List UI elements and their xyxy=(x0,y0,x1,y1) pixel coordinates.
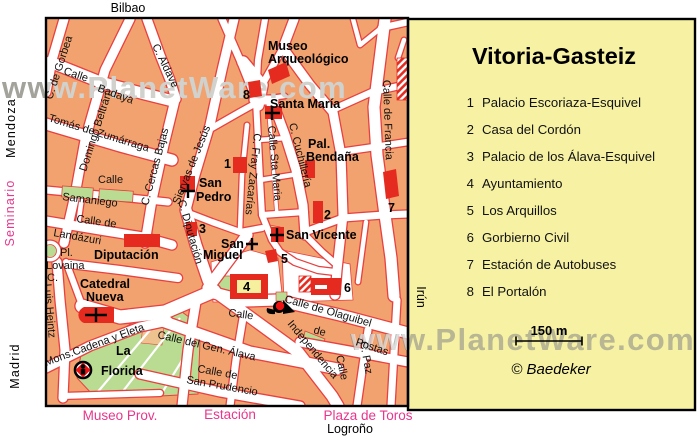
svg-text:Bendaña: Bendaña xyxy=(306,150,360,164)
svg-text:6: 6 xyxy=(467,230,474,245)
svg-text:5: 5 xyxy=(467,203,474,218)
svg-text:C.: C. xyxy=(47,272,58,284)
svg-text:8: 8 xyxy=(467,284,474,299)
svg-text:Arqueológico: Arqueológico xyxy=(268,52,349,66)
svg-text:Irún: Irún xyxy=(414,286,428,308)
svg-text:8: 8 xyxy=(243,88,250,102)
svg-text:La: La xyxy=(116,344,132,358)
svg-text:2: 2 xyxy=(324,208,331,222)
svg-text:Los Arquillos: Los Arquillos xyxy=(482,203,557,218)
svg-text:3: 3 xyxy=(467,149,474,164)
svg-text:San Vicente: San Vicente xyxy=(286,228,357,242)
svg-text:150 m: 150 m xyxy=(531,323,568,338)
svg-text:Florida: Florida xyxy=(101,364,144,378)
svg-text:4: 4 xyxy=(467,176,474,191)
svg-text:Miguel: Miguel xyxy=(203,248,243,262)
svg-text:Bilbao: Bilbao xyxy=(111,1,146,15)
svg-text:El Portalón: El Portalón xyxy=(482,284,547,299)
svg-text:6: 6 xyxy=(344,281,351,295)
svg-text:Plaza de Toros: Plaza de Toros xyxy=(323,408,412,423)
svg-text:1: 1 xyxy=(467,95,474,110)
svg-text:Museo: Museo xyxy=(268,39,308,53)
svg-text:Ayuntamiento: Ayuntamiento xyxy=(482,176,562,191)
svg-text:Seminario: Seminario xyxy=(3,179,17,246)
svg-text:San: San xyxy=(199,176,222,190)
svg-text:Pl.: Pl. xyxy=(60,247,73,259)
svg-text:7: 7 xyxy=(388,201,395,215)
svg-text:Gorbierno Civil: Gorbierno Civil xyxy=(482,230,569,245)
svg-text:Estación de Autobuses: Estación de Autobuses xyxy=(482,257,617,272)
svg-text:Diputación: Diputación xyxy=(94,248,159,262)
svg-text:Estación: Estación xyxy=(204,407,256,422)
svg-text:5: 5 xyxy=(281,252,288,266)
svg-text:Mendoza: Mendoza xyxy=(4,98,18,158)
svg-text:Palacio de los Álava-Esquivel: Palacio de los Álava-Esquivel xyxy=(482,149,655,164)
svg-text:Museo Prov.: Museo Prov. xyxy=(83,408,158,423)
svg-text:Pal.: Pal. xyxy=(308,137,330,151)
svg-text:4: 4 xyxy=(243,279,251,294)
svg-text:Palacio Escoriaza-Esquivel: Palacio Escoriaza-Esquivel xyxy=(482,95,641,110)
svg-text:2: 2 xyxy=(467,122,474,137)
svg-text:Casa del Cordón: Casa del Cordón xyxy=(482,122,581,137)
svg-text:© Baedeker: © Baedeker xyxy=(511,361,591,378)
svg-text:Lovaina: Lovaina xyxy=(46,260,85,272)
svg-text:1: 1 xyxy=(224,157,231,171)
svg-text:3: 3 xyxy=(199,222,206,236)
svg-text:Catedral: Catedral xyxy=(80,277,130,291)
svg-text:Pedro: Pedro xyxy=(196,190,232,204)
svg-text:Madrid: Madrid xyxy=(8,343,22,388)
svg-text:Logroño: Logroño xyxy=(327,422,373,436)
svg-text:Santa María: Santa María xyxy=(270,97,341,111)
svg-text:Calle: Calle xyxy=(98,174,123,186)
svg-text:Nueva: Nueva xyxy=(86,290,125,304)
svg-text:Vitoria-Gasteiz: Vitoria-Gasteiz xyxy=(472,43,636,69)
svg-text:7: 7 xyxy=(467,257,474,272)
